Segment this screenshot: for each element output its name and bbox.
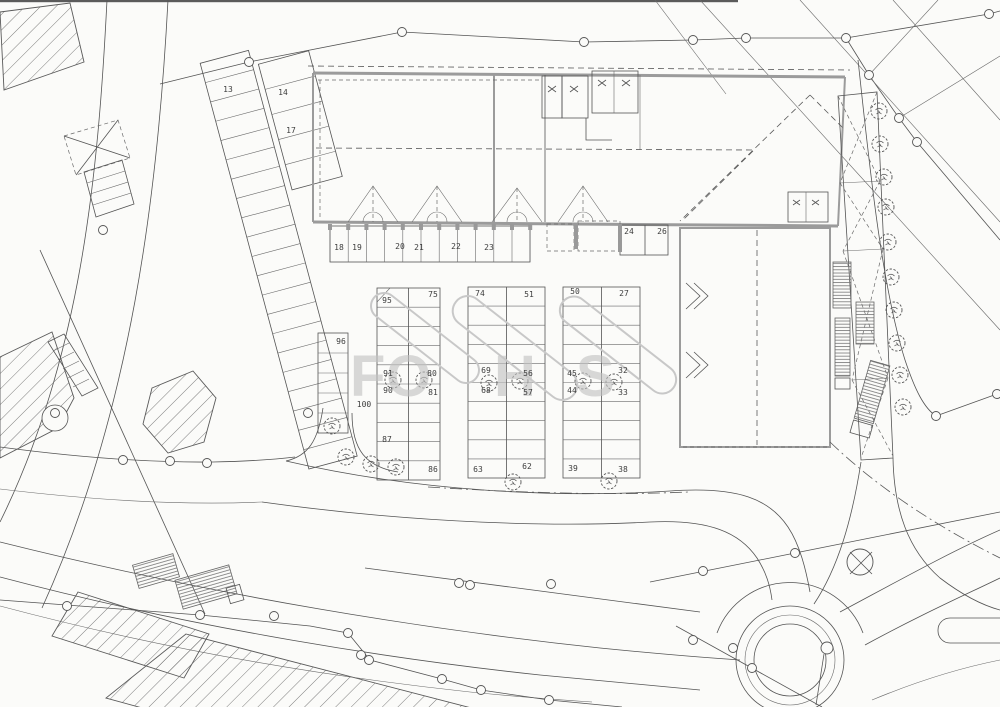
parking-space-label: 63 <box>473 465 483 474</box>
site-plan-page: FOHS 13141718192021222324269575745150279… <box>0 0 1000 707</box>
parking-space-label: 39 <box>568 464 578 473</box>
tree-icon <box>871 103 887 119</box>
building-front-stalls <box>328 221 668 262</box>
roundabout <box>676 582 863 707</box>
parking-space-label: 21 <box>414 243 424 252</box>
parking-space-label: 26 <box>657 227 667 236</box>
watermark-letter: S <box>576 344 615 409</box>
survey-node-icon <box>365 656 374 665</box>
loading-trucks <box>833 262 890 438</box>
left-road <box>0 0 295 614</box>
scan-edge <box>0 0 738 2</box>
parking-space-label: 18 <box>334 243 344 252</box>
survey-node-icon <box>545 696 554 705</box>
parking-space-label: 44 <box>567 386 577 395</box>
parking-space-label: 75 <box>428 290 438 299</box>
parking-space-label: 24 <box>624 227 634 236</box>
parking-space-label: 86 <box>428 465 438 474</box>
parking-space-label: 87 <box>382 435 392 444</box>
hatched-building-midleft <box>0 332 74 458</box>
parking-space-label: 95 <box>382 296 392 305</box>
parking-space-label: 13 <box>223 85 233 94</box>
survey-node-icon <box>547 580 556 589</box>
tree-icon <box>876 169 892 185</box>
parking-space-label: 100 <box>357 400 372 409</box>
entrance-canopies <box>348 186 608 222</box>
parking-space-label: 90 <box>383 386 393 395</box>
survey-node-icon <box>466 581 475 590</box>
site-plan-drawing: FOHS 13141718192021222324269575745150279… <box>0 0 1000 707</box>
parking-space-label: 74 <box>475 289 485 298</box>
parking-space-label: 91 <box>383 369 393 378</box>
survey-node-icon <box>742 34 751 43</box>
hatched-building-topleft <box>0 3 84 90</box>
survey-node-icon <box>357 651 366 660</box>
parking-space-label: 22 <box>451 242 461 251</box>
parking-space-label: 50 <box>570 287 580 296</box>
survey-node-icon <box>398 28 407 37</box>
parking-space-label: 23 <box>484 243 494 252</box>
survey-node-icon <box>344 629 353 638</box>
survey-node-icon <box>993 390 1000 399</box>
toilet-rooms <box>542 71 638 140</box>
survey-node-icon <box>438 675 447 684</box>
existing-buildings <box>0 3 510 707</box>
crossed-structure <box>64 120 130 175</box>
parking-space-label: 19 <box>352 243 362 252</box>
survey-node-icon <box>895 114 904 123</box>
survey-node-icon <box>748 664 757 673</box>
parking-space-label: 80 <box>427 369 437 378</box>
survey-node-icon <box>270 612 279 621</box>
survey-node-icon <box>699 567 708 576</box>
survey-node-icon <box>63 602 72 611</box>
survey-node-icon <box>913 138 922 147</box>
survey-node-icon <box>304 409 313 418</box>
parking-space-label: 27 <box>619 289 629 298</box>
right-hall <box>680 228 830 447</box>
tree-icon <box>878 199 894 215</box>
parking-space-label: 45 <box>567 369 577 378</box>
survey-node-icon <box>729 644 738 653</box>
trees-layer <box>324 103 911 490</box>
toilet-room-right <box>788 192 828 222</box>
parking-space-label: 33 <box>618 388 628 397</box>
hatched-building-rotated <box>143 371 216 453</box>
parking-space-label: 96 <box>336 337 346 346</box>
tree-icon <box>872 136 888 152</box>
tree-icon <box>388 459 404 475</box>
crossed-circle-marker <box>847 549 873 575</box>
parking-space-label: 57 <box>523 388 533 397</box>
survey-node-icon <box>689 636 698 645</box>
survey-node-icon <box>865 71 874 80</box>
parking-space-label: 17 <box>286 126 296 135</box>
survey-node-icon <box>166 457 175 466</box>
survey-node-icon <box>477 686 486 695</box>
tree-icon <box>889 335 905 351</box>
tree-icon <box>601 473 617 489</box>
survey-node-icon <box>580 38 589 47</box>
parking-space-label: 32 <box>618 366 628 375</box>
parking-space-label: 69 <box>481 366 491 375</box>
survey-node-icon <box>119 456 128 465</box>
survey-node-icon <box>245 58 254 67</box>
parking-space-label: 56 <box>523 369 533 378</box>
road-markings <box>133 554 244 609</box>
survey-node-icon <box>689 36 698 45</box>
survey-node-icon <box>985 10 994 19</box>
parking-number-labels: 1314171819202122232426957574515027961009… <box>223 85 667 474</box>
parking-space-label: 68 <box>481 386 491 395</box>
tree-icon <box>895 399 911 415</box>
parking-space-label: 14 <box>278 88 288 97</box>
parking-space-label: 51 <box>524 290 534 299</box>
tree-icon <box>505 474 521 490</box>
survey-node-icon <box>51 409 60 418</box>
tree-icon <box>324 418 340 434</box>
survey-node-icon <box>932 412 941 421</box>
parking-space-label: 20 <box>395 242 405 251</box>
parking-space-label: 38 <box>618 465 628 474</box>
survey-node-icon <box>99 226 108 235</box>
tree-icon <box>886 302 902 318</box>
tree-icon <box>338 449 354 465</box>
tree-icon <box>892 367 908 383</box>
parking-space-label: 62 <box>522 462 532 471</box>
parking-space-label: 81 <box>428 388 438 397</box>
survey-node-icon <box>791 549 800 558</box>
survey-node-icon <box>455 579 464 588</box>
survey-node-icon <box>196 611 205 620</box>
survey-node-icon <box>203 459 212 468</box>
survey-node-icon <box>842 34 851 43</box>
